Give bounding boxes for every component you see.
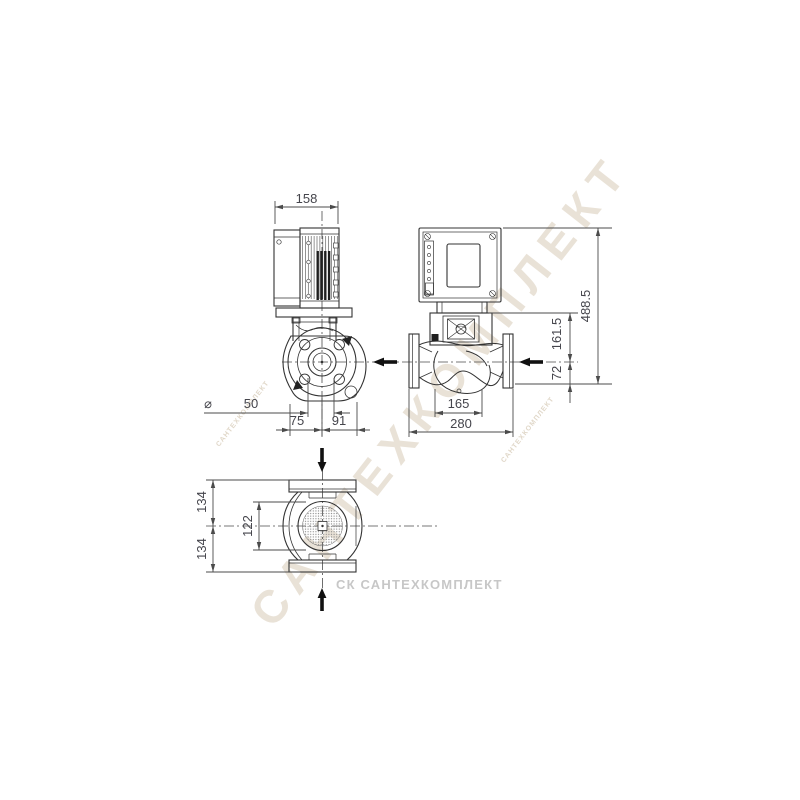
gland-strip — [425, 241, 434, 295]
nameplate — [447, 244, 480, 287]
dim-overall-length-label: 280 — [450, 416, 472, 431]
front-terminal-box — [274, 230, 300, 306]
dimension-lines — [204, 201, 612, 572]
flow-arrow-front — [373, 358, 397, 367]
dimension-labels: 158 488.5 161.5 72 ⌀ 50 75 91 165 280 13… — [194, 191, 593, 560]
dimension-arrowheads — [211, 205, 600, 572]
dim-overall-height-label: 488.5 — [578, 290, 593, 323]
motor-cooling-fins — [303, 236, 338, 299]
front-view — [274, 211, 398, 438]
side-pump-head — [430, 302, 492, 345]
dim-head-length-label: 165 — [448, 396, 470, 411]
dim-left-of-axis-label: 75 — [290, 413, 304, 428]
dim-nominal-bore-label: 50 — [244, 396, 258, 411]
flow-arrow-top-outlet — [318, 588, 327, 611]
dim-body-width-label: 122 — [240, 515, 255, 537]
dim-right-of-axis-label: 91 — [332, 413, 346, 428]
front-motor — [300, 228, 339, 308]
flow-arrow-top-inlet — [318, 448, 327, 472]
diameter-symbol: ⌀ — [204, 396, 212, 411]
side-terminal-box — [419, 228, 501, 302]
flow-arrows — [318, 358, 543, 611]
dim-lower-half-width-label: 134 — [194, 538, 209, 560]
dim-upper-half-width-label: 134 — [194, 491, 209, 513]
motor-fin-shadows — [317, 251, 331, 300]
drawing-canvas: САНТЕХКОМПЛЕКТ САНТЕХКОМПЛЕКТ САНТЕХКОМП… — [0, 0, 800, 800]
dim-axis-to-base-label: 72 — [549, 366, 564, 380]
dim-axis-to-stool-label: 161.5 — [549, 318, 564, 351]
dim-motor-width-label: 158 — [296, 191, 318, 206]
dimensional-drawing-svg: 158 488.5 161.5 72 ⌀ 50 75 91 165 280 13… — [0, 0, 800, 800]
front-volute — [283, 328, 366, 401]
flow-arrow-side-right — [519, 358, 543, 367]
side-volute — [419, 341, 503, 393]
